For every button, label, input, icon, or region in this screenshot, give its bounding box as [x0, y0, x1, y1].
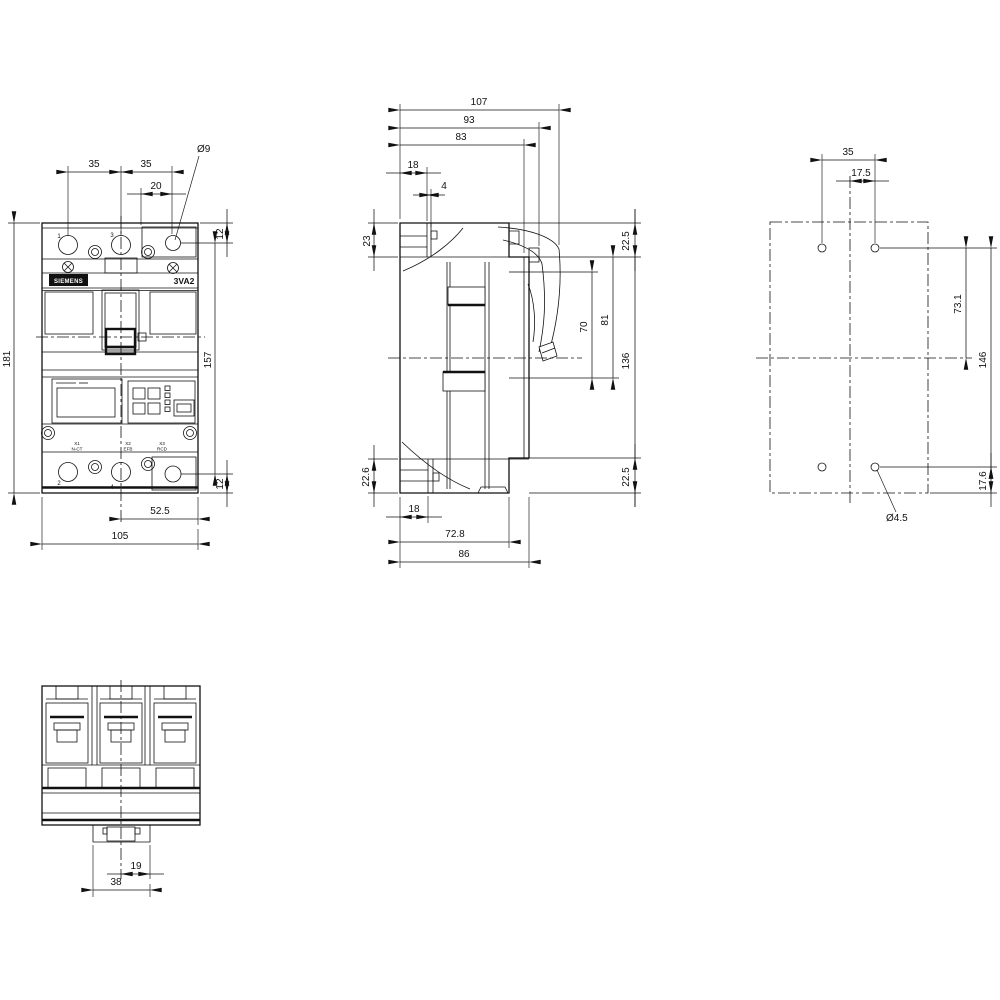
front-top-terminals: 1 3: [57, 227, 196, 274]
dim-front-step: 18: [407, 160, 419, 171]
dim-hole-pitch-v: 146: [978, 351, 989, 368]
mounting-extension-lines: [822, 154, 997, 512]
pole-label-2: 2: [57, 481, 61, 487]
terminal-sublabel-x3: RCD: [157, 447, 168, 452]
dim-top-front: 23: [362, 235, 373, 247]
mounting-hole: [871, 244, 879, 252]
dim-hole-offset: 20: [150, 181, 162, 192]
accessory-box-top: [142, 227, 196, 257]
dim-hole-to-center: 73.1: [953, 294, 964, 314]
mounting-hole-top: [166, 236, 181, 251]
side-dimensions: 107 93 83 18 4 23 22.6 22: [361, 97, 635, 562]
dim-panel-height: 136: [621, 352, 632, 369]
dim-pole-pitch-a: 35: [88, 159, 100, 170]
front-dimensions: 35 35 20 Ø9 12 157 181 12 52.5 105: [2, 144, 227, 544]
dim-terminal-upper: 70: [579, 321, 590, 333]
dimension-drawing: 1 3 SIEMENS 3VA2: [0, 0, 1000, 1000]
bottom-dimensions: 19 38: [93, 861, 164, 890]
front-terminal-labels: X1 N-CT X2 EFB X3 RCD: [72, 441, 168, 452]
front-view: 1 3 SIEMENS 3VA2: [2, 144, 233, 550]
dim-base-depth: 86: [458, 549, 470, 560]
bottom-pole-1: [46, 686, 88, 788]
terminal-sublabel-x1: N-CT: [72, 447, 83, 452]
dim-hole-half-pitch: 17.5: [851, 168, 871, 179]
bottom-pole-3: [154, 686, 196, 788]
dim-hole-bottom-offset: 17.6: [978, 471, 989, 491]
dim-foot-front: 18: [408, 504, 420, 515]
accessory-box-bottom: [152, 457, 196, 490]
etu-display: [57, 388, 115, 417]
dim-depth-max: 107: [471, 97, 488, 108]
side-extension-lines: [368, 104, 641, 568]
dim-depth-panel: 83: [455, 132, 467, 143]
dim-hole-span: 157: [203, 351, 214, 368]
dim-depth-latch: 93: [463, 115, 475, 126]
dim-half-width: 52.5: [150, 506, 170, 517]
handle-slot: [102, 290, 139, 350]
dim-hole-bottom: 12: [215, 478, 226, 490]
dim-height: 181: [2, 350, 13, 367]
bottom-body: [42, 680, 200, 879]
dim-hole-pitch-h: 35: [842, 147, 854, 158]
etu-button: [133, 388, 145, 399]
etu-button: [148, 388, 160, 399]
dim-terminal-lower: 81: [600, 314, 611, 326]
terminal-label-x3: X3: [159, 441, 165, 446]
hole-leader-line: [877, 470, 896, 512]
dimension-drawing-page: 1 3 SIEMENS 3VA2: [0, 0, 1000, 1000]
terminal-sublabel-x2: EFB: [124, 447, 133, 452]
mounting-hole-bottom: [165, 466, 181, 482]
dim-pole-pitch-b: 35: [140, 159, 152, 170]
dim-foot-depth: 72.8: [445, 529, 465, 540]
pole-label-3: 3: [110, 233, 114, 239]
bottom-view: 19 38: [42, 680, 200, 897]
dim-escutcheon-width: 38: [110, 877, 122, 888]
bottom-handle-escutcheon: [93, 825, 150, 842]
front-etu-module: [42, 379, 197, 440]
mounting-hole: [818, 244, 826, 252]
mounting-outline: [756, 176, 972, 506]
mounting-dimensions: 35 17.5 73.1 146 17.6 Ø4.5: [822, 147, 991, 524]
terminal-label-x1: X1: [74, 441, 80, 446]
side-view: 107 93 83 18 4 23 22.6 22: [361, 97, 641, 568]
front-branding: SIEMENS 3VA2: [49, 274, 195, 286]
dim-front-web: 4: [441, 181, 447, 192]
dim-width: 105: [112, 531, 129, 542]
front-bottom-terminals: 2 4: [57, 457, 196, 491]
dim-top-rear: 22.5: [621, 231, 632, 251]
terminal-label-x2: X2: [125, 441, 131, 446]
dim-hole-dia: Ø9: [197, 144, 211, 155]
etu-button: [148, 403, 160, 414]
front-face-and-handle: [45, 290, 196, 354]
brand-label: SIEMENS: [54, 279, 83, 285]
model-label: 3VA2: [174, 276, 195, 286]
mounting-hole: [818, 463, 826, 471]
dim-hole-top: 12: [215, 228, 226, 240]
toggle-handle: [106, 329, 135, 347]
dim-mounting-hole-dia: Ø4.5: [886, 513, 908, 524]
mounting-view: 35 17.5 73.1 146 17.6 Ø4.5: [756, 147, 997, 524]
dim-bottom-rear: 22.5: [621, 467, 632, 487]
etu-button: [133, 403, 145, 414]
mounting-hole: [871, 463, 879, 471]
dim-bottom-front: 22.6: [361, 467, 372, 487]
side-body: [388, 223, 582, 493]
dim-handle-width: 19: [130, 861, 142, 872]
